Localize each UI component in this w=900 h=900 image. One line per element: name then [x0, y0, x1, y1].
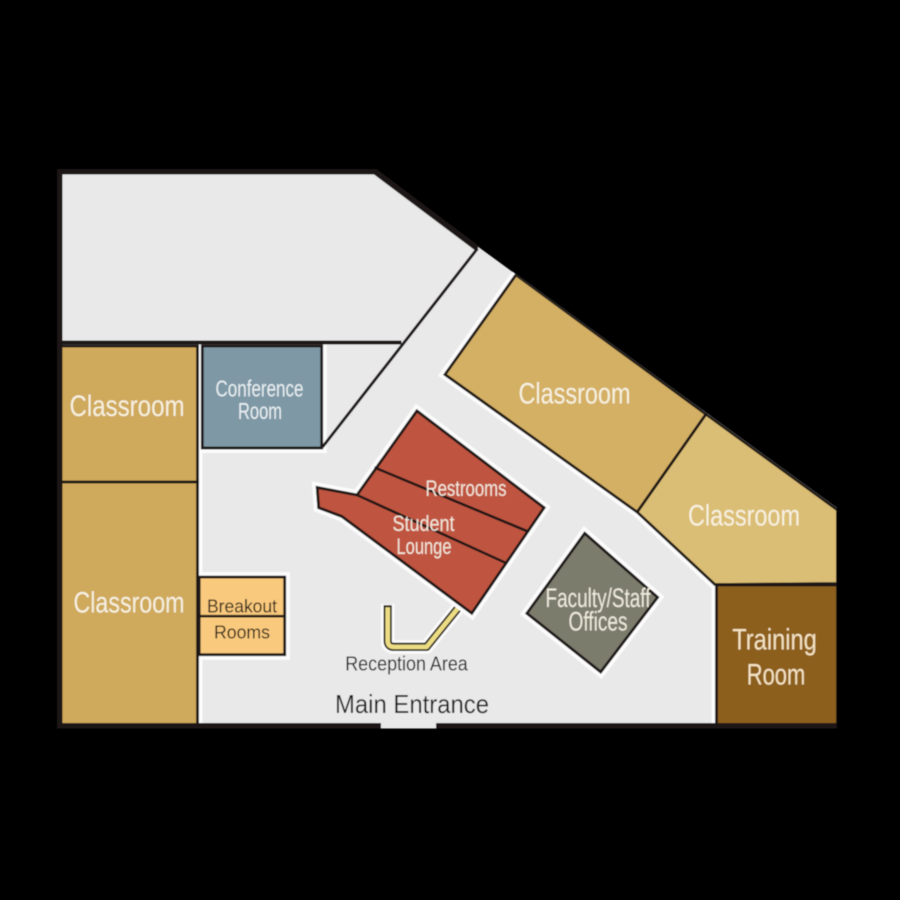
svg-text:Classroom: Classroom — [688, 499, 800, 532]
svg-text:Student: Student — [393, 511, 455, 536]
svg-text:Room: Room — [238, 398, 282, 424]
svg-text:Classroom: Classroom — [519, 378, 631, 411]
svg-text:Training: Training — [732, 624, 817, 657]
svg-text:Rooms: Rooms — [214, 622, 270, 643]
svg-text:Classroom: Classroom — [70, 390, 185, 423]
svg-text:Reception Area: Reception Area — [345, 653, 468, 676]
svg-text:Room: Room — [747, 659, 806, 692]
svg-text:Restrooms: Restrooms — [426, 476, 507, 501]
svg-text:Offices: Offices — [569, 607, 628, 637]
svg-text:Breakout: Breakout — [207, 596, 277, 617]
svg-text:Classroom: Classroom — [74, 587, 185, 620]
svg-text:Lounge: Lounge — [397, 534, 452, 559]
svg-text:Main Entrance: Main Entrance — [335, 689, 489, 719]
